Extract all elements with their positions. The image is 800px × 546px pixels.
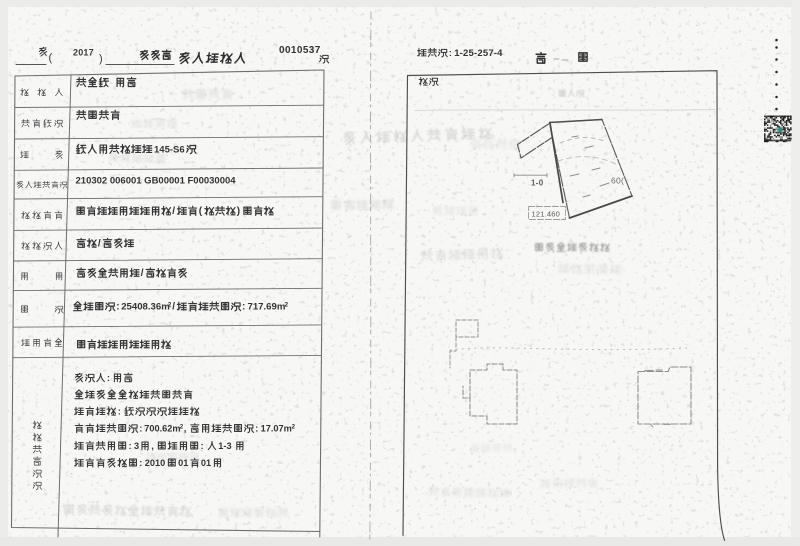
- svg-text:25408.36m: 25408.36m: [121, 302, 170, 313]
- svg-text:(: (: [49, 52, 53, 64]
- svg-text:,: ,: [184, 424, 187, 435]
- svg-text:0010537: 0010537: [279, 45, 321, 56]
- svg-text:2: 2: [285, 302, 289, 309]
- svg-text:717.69m: 717.69m: [248, 302, 286, 313]
- svg-text:145-S6: 145-S6: [154, 145, 185, 156]
- svg-text::: :: [139, 424, 142, 435]
- svg-text:1-3: 1-3: [218, 441, 231, 451]
- svg-text:01: 01: [201, 458, 211, 468]
- svg-text:1-0: 1-0: [531, 179, 544, 188]
- svg-text:3: 3: [134, 441, 139, 451]
- svg-text:): ): [237, 206, 240, 217]
- svg-text::: :: [129, 441, 132, 452]
- svg-text:2: 2: [168, 302, 172, 309]
- svg-text:,: ,: [151, 441, 154, 452]
- svg-text:1-25-257-4: 1-25-257-4: [454, 48, 503, 59]
- svg-text::: :: [118, 407, 121, 418]
- svg-text:2010: 2010: [145, 458, 165, 468]
- svg-text:): ): [99, 53, 103, 65]
- svg-text:/: /: [98, 238, 101, 249]
- svg-text::: :: [116, 302, 119, 313]
- svg-text:17.07m: 17.07m: [261, 424, 292, 434]
- svg-text:2: 2: [292, 424, 296, 431]
- svg-text:/: /: [141, 268, 144, 279]
- svg-text::: :: [201, 441, 204, 452]
- svg-text::: :: [255, 424, 258, 435]
- svg-text:210302 006001 GB00001 F0003000: 210302 006001 GB00001 F00030004: [76, 176, 237, 187]
- svg-text:/: /: [172, 302, 175, 313]
- svg-text::: :: [449, 48, 452, 59]
- svg-text:01: 01: [178, 458, 188, 468]
- svg-text::: :: [139, 458, 142, 469]
- svg-text:2017: 2017: [73, 48, 94, 58]
- svg-text:700.62m: 700.62m: [144, 424, 180, 434]
- svg-text::: :: [242, 302, 245, 313]
- svg-text:60(: 60(: [611, 176, 624, 186]
- svg-text::: :: [107, 373, 110, 384]
- svg-text:121.460: 121.460: [532, 210, 561, 219]
- svg-text:/: /: [172, 206, 175, 217]
